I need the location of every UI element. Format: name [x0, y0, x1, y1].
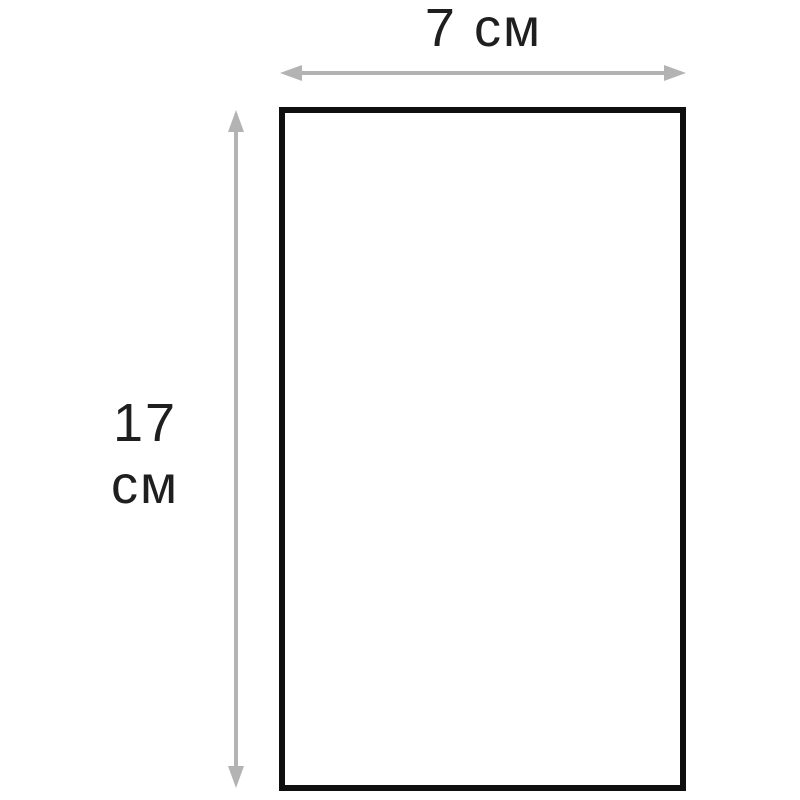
height-dimension-label: 17 см: [70, 392, 220, 516]
height-arrowhead-bottom: [228, 766, 244, 788]
height-unit-text: см: [111, 455, 179, 515]
width-arrowhead-right: [664, 65, 686, 81]
width-dimension-label: 7 см: [280, 0, 687, 58]
rectangle-shape: [279, 107, 686, 791]
dimension-diagram: 7 см 17 см: [0, 0, 800, 800]
width-double-arrow-icon: [278, 59, 688, 87]
height-double-arrow-icon: [222, 108, 250, 790]
height-arrowhead-top: [228, 110, 244, 132]
height-value-text: 17: [113, 393, 177, 453]
width-arrowhead-left: [280, 65, 302, 81]
